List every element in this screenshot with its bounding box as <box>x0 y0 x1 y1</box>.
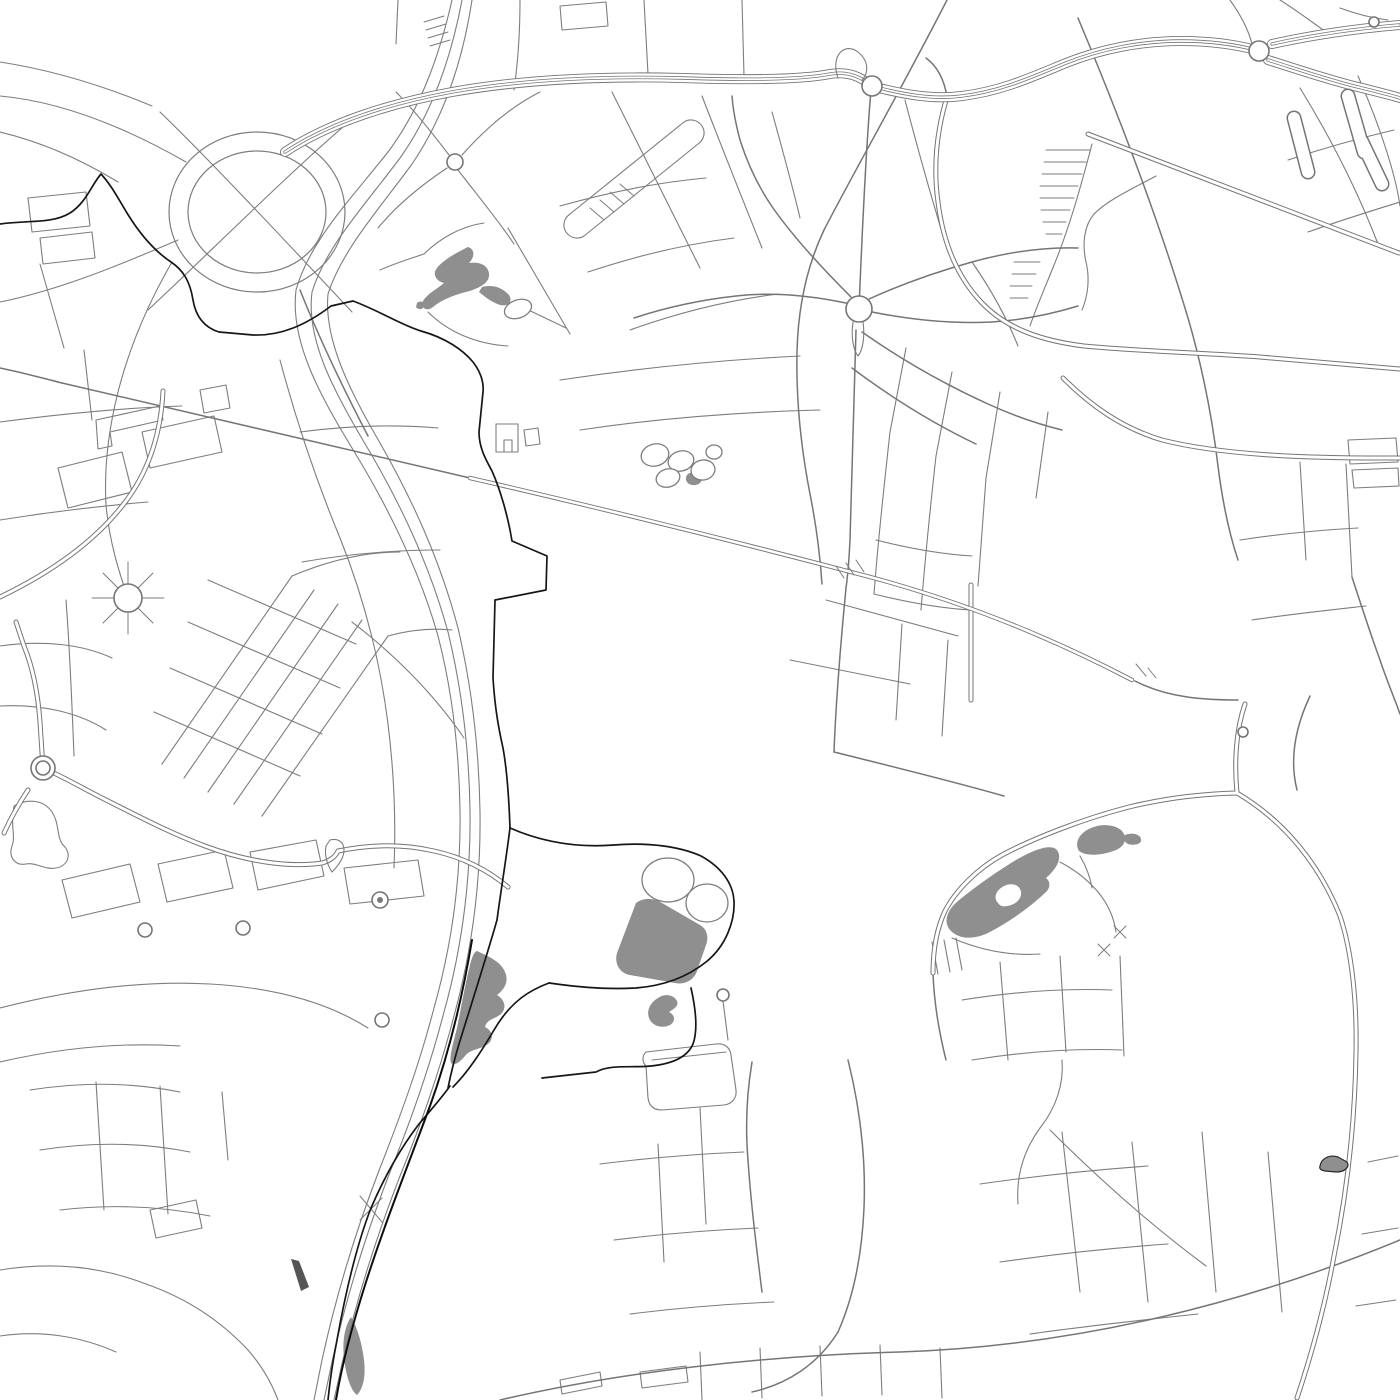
stream-lines <box>0 174 734 1400</box>
station-platform <box>291 1259 309 1291</box>
corridor-tracks <box>295 0 480 1400</box>
railway-line <box>470 478 1132 680</box>
dock-piers <box>1294 96 1382 184</box>
park-cells <box>502 296 728 922</box>
junction-node-dots <box>377 897 383 903</box>
map-svg <box>0 0 1400 1400</box>
single-roads <box>0 0 1400 1400</box>
minor-roads <box>0 0 1400 1400</box>
map-viewport[interactable] <box>0 0 1400 1400</box>
major-roads <box>0 97 1400 1398</box>
pond-dark-outline <box>1320 1156 1348 1172</box>
water-bodies <box>343 247 1141 1395</box>
interchange-loops <box>169 132 345 292</box>
